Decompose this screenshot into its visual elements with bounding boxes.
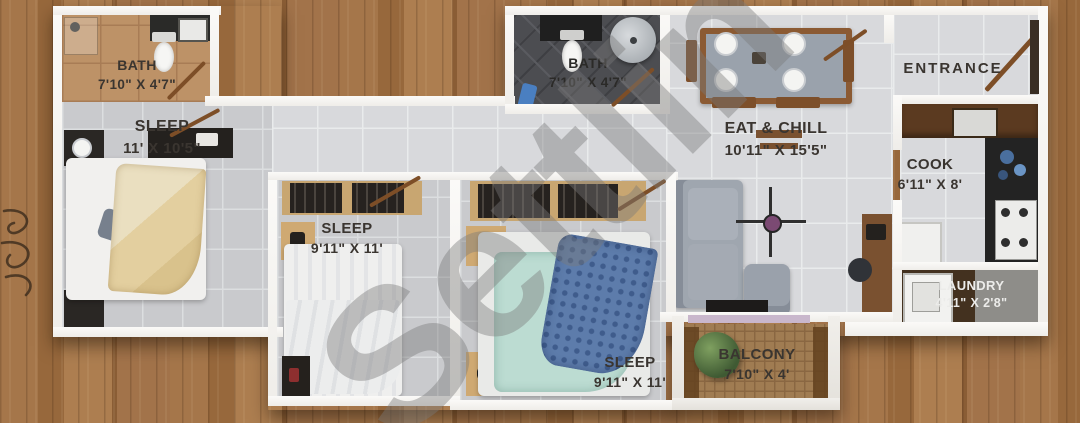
dishes (1014, 164, 1026, 176)
wall (53, 327, 283, 337)
wall (505, 6, 514, 110)
wardrobe-clothes (478, 184, 550, 218)
balcony-sill (688, 315, 810, 323)
wall (205, 96, 515, 106)
bench-item (289, 368, 299, 382)
sofa-cushion (688, 188, 738, 240)
room-name: BATH (62, 56, 212, 76)
hallway-floor (272, 106, 666, 174)
dining-bench (776, 97, 820, 108)
wall (450, 400, 678, 410)
wall (893, 200, 902, 322)
plate (782, 32, 806, 56)
ceiling-fan-hub (763, 214, 782, 233)
burner (1001, 208, 1010, 217)
room-name: EAT & CHILL (676, 118, 876, 140)
burner (1019, 208, 1028, 217)
room-name: COOK (872, 154, 988, 175)
desk-items (866, 224, 886, 240)
desk-chair (848, 258, 872, 282)
plate (782, 68, 806, 92)
wardrobe-clothes (558, 184, 618, 218)
dining-chair (686, 40, 697, 82)
wall (268, 172, 277, 405)
room-dims: 10'11" X 15'5" (676, 140, 876, 161)
room-dims: 4'11" X 2'8" (905, 295, 1038, 313)
room-dims: 6'11" X 8' (872, 175, 988, 195)
room-name: SLEEP (62, 116, 262, 138)
wall (893, 95, 1038, 104)
room-dims: 11' X 10'5" (62, 138, 262, 159)
dishes (998, 170, 1008, 180)
room-label-eat-chill: EAT & CHILL 10'11" X 15'5" (676, 118, 876, 161)
plate (714, 32, 738, 56)
toilet-icon (560, 30, 584, 40)
room-name: LAUNDRY (905, 277, 1038, 295)
room-label-cook: COOK 6'11" X 8' (872, 154, 988, 195)
room-dims: 7'10" X 4'7" (62, 76, 212, 95)
wall (505, 6, 670, 15)
room-dims: 7'10" X 4' (690, 365, 824, 385)
room-name: SLEEP (277, 218, 417, 239)
burner (1019, 238, 1028, 247)
bath1-sink (178, 18, 208, 42)
wall (845, 322, 1048, 336)
dishes (1000, 150, 1014, 164)
wall (268, 172, 678, 180)
room-dims: 7'10" X 4'7" (514, 74, 662, 93)
room-label-sleep2: SLEEP 9'11" X 11' (277, 218, 417, 259)
wood-ornament-icon (0, 205, 46, 300)
wall (884, 15, 894, 43)
room-label-bath2: BATH 7'10" X 4'7" (514, 54, 662, 92)
room-label-sleep1: SLEEP 11' X 10'5" (62, 116, 262, 159)
room-name: ENTRANCE (878, 58, 1028, 79)
wall (268, 396, 460, 406)
wall (1038, 6, 1048, 336)
wall (828, 316, 840, 408)
sofa-cushion (688, 244, 738, 300)
kitchen-sink (952, 108, 998, 138)
room-label-entrance: ENTRANCE (878, 58, 1028, 79)
wardrobe-clothes (290, 183, 342, 213)
room-label-balcony: BALCONY 7'10" X 4' (690, 344, 824, 385)
entrance-door-frame (1030, 20, 1039, 94)
wall (505, 104, 670, 114)
room-label-bath1: BATH 7'10" X 4'7" (62, 56, 212, 94)
wall (450, 180, 460, 405)
shower-tray (64, 17, 98, 55)
plate (714, 68, 738, 92)
wall (672, 398, 840, 410)
table-centerpiece (752, 52, 766, 64)
room-label-laundry: LAUNDRY 4'11" X 2'8" (905, 277, 1038, 313)
wall (893, 262, 1038, 270)
wall (666, 172, 676, 322)
dining-bench (712, 97, 756, 108)
room-dims: 9'11" X 11' (277, 239, 417, 259)
wall (53, 6, 221, 15)
room-name: BALCONY (690, 344, 824, 365)
room-name: BATH (514, 54, 662, 74)
wall (53, 6, 62, 337)
wall (660, 6, 1048, 15)
burner (1001, 238, 1010, 247)
wall (893, 95, 902, 150)
basin-drain (630, 37, 637, 44)
floorplan-canvas: BATH 7'10" X 4'7" SLEEP 11' X 10'5" SLEE… (0, 0, 1080, 423)
toilet-icon (152, 32, 176, 42)
